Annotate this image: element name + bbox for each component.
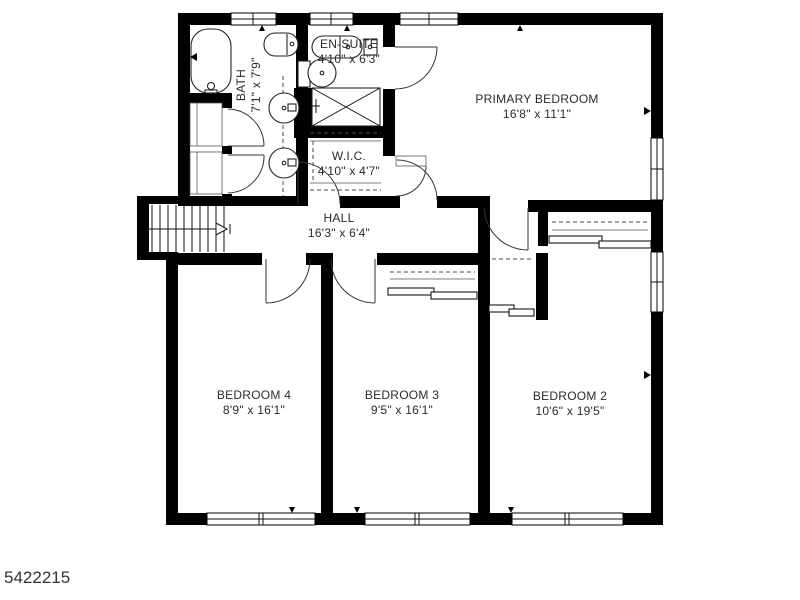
toilet-icon	[264, 33, 298, 56]
staircase-icon	[149, 205, 230, 252]
room-label-bedroom2: BEDROOM 2 10'6" x 19'5"	[533, 389, 607, 419]
room-name: EN-SUITE	[318, 37, 380, 52]
bedroom3-door	[331, 259, 375, 303]
room-label-ensuite: EN-SUITE 4'10" x 6'3"	[318, 37, 380, 67]
room-label-bedroom3: BEDROOM 3 9'5" x 16'1"	[365, 388, 439, 418]
window	[207, 513, 315, 525]
window	[651, 138, 663, 200]
sink-icon	[269, 148, 299, 178]
room-label-bedroom4: BEDROOM 4 8'9" x 16'1"	[217, 388, 291, 418]
bedroom2-closet	[549, 222, 651, 248]
bedroom2-second-closet	[489, 259, 534, 316]
room-dims: 8'9" x 16'1"	[217, 403, 291, 418]
room-name: W.I.C.	[318, 149, 380, 164]
window	[400, 13, 458, 25]
room-label-hall: HALL 16'3" x 6'4"	[308, 211, 370, 241]
room-name: PRIMARY BEDROOM	[475, 92, 598, 107]
closet-door	[228, 109, 264, 146]
window	[512, 513, 623, 525]
room-label-bath: BATH 7'1" x 7'9"	[234, 57, 264, 112]
photo-id-label: 5422215	[4, 568, 70, 588]
room-dims: 7'1" x 7'9"	[249, 57, 264, 112]
bedroom2-door	[484, 208, 528, 250]
room-name: BEDROOM 3	[365, 388, 439, 403]
room-name: HALL	[308, 211, 370, 226]
shower-icon	[312, 88, 380, 126]
linen-closet	[190, 103, 222, 194]
room-dims: 10'6" x 19'5"	[533, 404, 607, 419]
closet-door	[228, 155, 264, 193]
sink-icon	[269, 93, 299, 123]
room-dims: 16'3" x 6'4"	[308, 226, 370, 241]
room-name: BEDROOM 4	[217, 388, 291, 403]
room-dims: 4'10" x 6'3"	[318, 52, 380, 67]
room-name: BATH	[234, 57, 249, 112]
room-label-wic: W.I.C. 4'10" x 4'7"	[318, 149, 380, 179]
room-dims: 9'5" x 16'1"	[365, 403, 439, 418]
window	[310, 13, 353, 25]
room-dims: 4'10" x 4'7"	[318, 164, 380, 179]
room-name: BEDROOM 2	[533, 389, 607, 404]
room-label-primary-bedroom: PRIMARY BEDROOM 16'8" x 11'1"	[475, 92, 598, 122]
windows	[207, 13, 663, 525]
bedroom4-door	[266, 259, 310, 303]
window	[231, 13, 276, 25]
room-dims: 16'8" x 11'1"	[475, 107, 598, 122]
floorplan-page: BATH 7'1" x 7'9" EN-SUITE 4'10" x 6'3" P…	[0, 0, 800, 600]
floorplan-drawing	[0, 0, 800, 600]
window	[651, 252, 663, 312]
window	[365, 513, 470, 525]
ensuite-door	[395, 47, 437, 89]
bedroom3-closet	[388, 272, 477, 299]
